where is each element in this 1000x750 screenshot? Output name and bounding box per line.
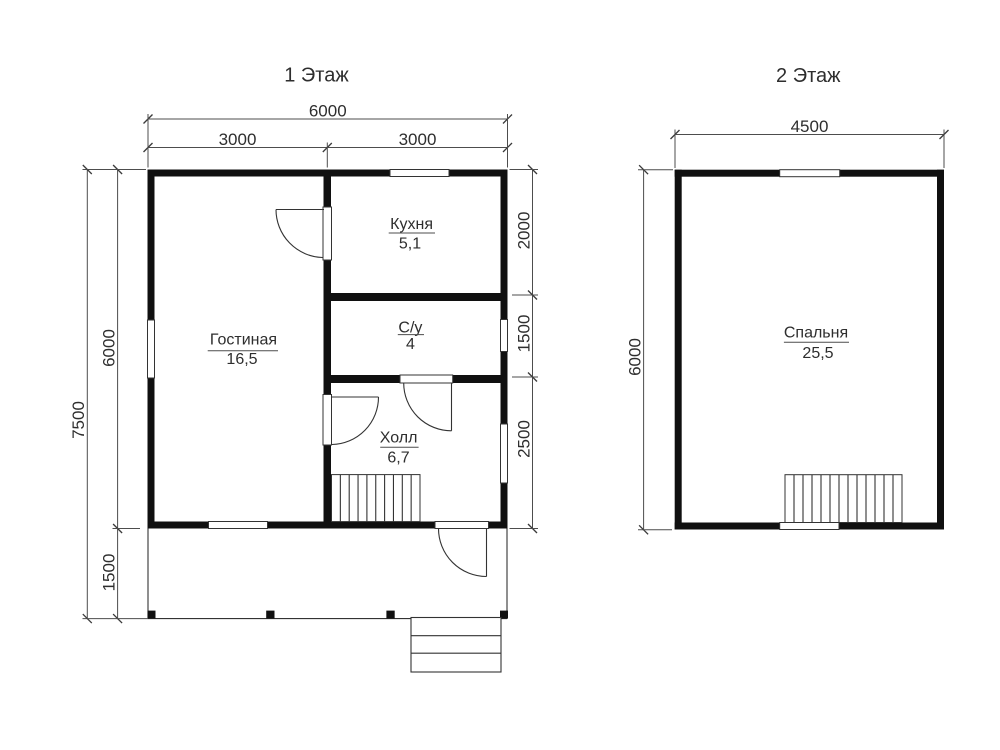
svg-text:6000: 6000 — [309, 102, 347, 121]
svg-text:6000: 6000 — [626, 338, 645, 376]
svg-text:1500: 1500 — [100, 554, 119, 592]
svg-text:3000: 3000 — [219, 130, 257, 149]
svg-text:7500: 7500 — [69, 401, 88, 439]
svg-text:3000: 3000 — [399, 130, 437, 149]
svg-text:2 Этаж: 2 Этаж — [776, 65, 841, 87]
svg-text:2500: 2500 — [515, 420, 534, 458]
svg-text:Холл: Холл — [380, 430, 418, 447]
svg-text:4500: 4500 — [791, 117, 829, 136]
svg-text:1500: 1500 — [515, 315, 534, 353]
svg-text:1 Этаж: 1 Этаж — [284, 65, 349, 87]
svg-text:С/у: С/у — [398, 319, 422, 336]
svg-text:16,5: 16,5 — [226, 351, 257, 368]
svg-text:Кухня: Кухня — [390, 216, 433, 233]
svg-text:4: 4 — [406, 336, 415, 353]
svg-text:6000: 6000 — [100, 329, 119, 367]
svg-text:Спальня: Спальня — [784, 325, 848, 342]
svg-text:Гостиная: Гостиная — [210, 332, 277, 349]
svg-text:25,5: 25,5 — [802, 345, 833, 362]
svg-text:6,7: 6,7 — [387, 449, 409, 466]
svg-text:5,1: 5,1 — [399, 235, 421, 252]
svg-text:2000: 2000 — [515, 212, 534, 250]
